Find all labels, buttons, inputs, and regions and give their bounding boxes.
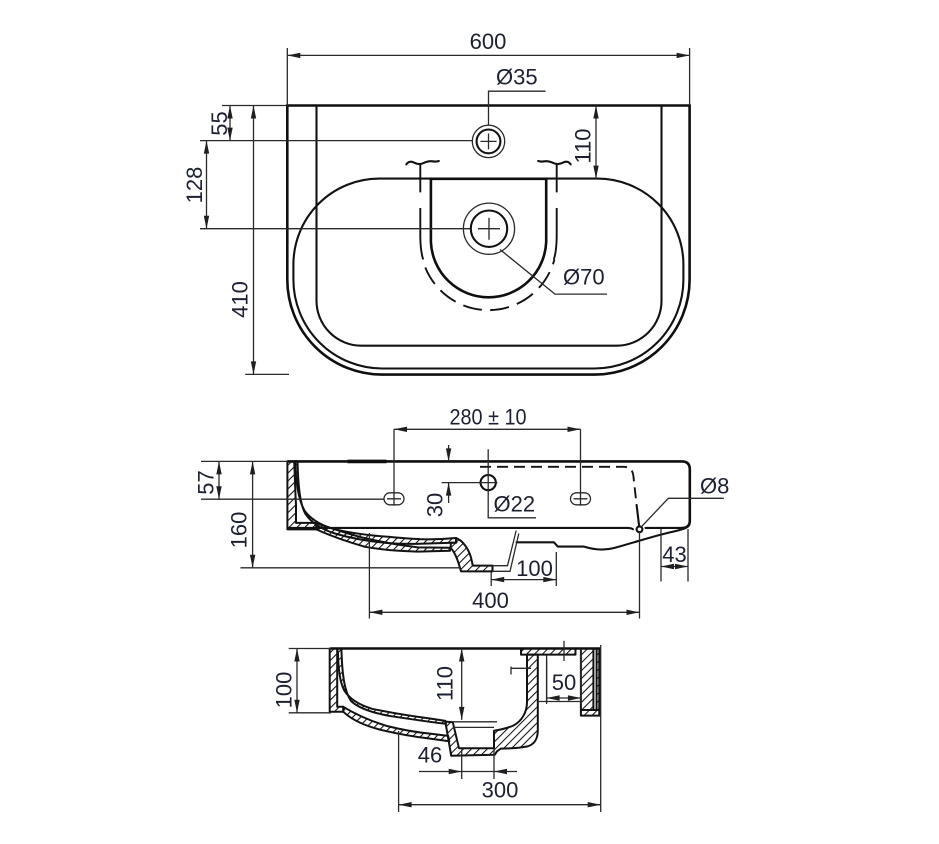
svg-text:43: 43	[662, 542, 686, 567]
svg-text:400: 400	[472, 588, 509, 613]
svg-text:46: 46	[418, 743, 442, 768]
svg-text:100: 100	[272, 672, 297, 709]
svg-text:Ø22: Ø22	[494, 492, 536, 517]
svg-text:280 ± 10: 280 ± 10	[450, 405, 527, 430]
svg-text:128: 128	[182, 167, 207, 204]
svg-text:55: 55	[207, 111, 232, 135]
svg-text:110: 110	[433, 666, 458, 701]
svg-text:Ø8: Ø8	[700, 474, 729, 499]
svg-text:50: 50	[552, 670, 576, 695]
svg-text:30: 30	[423, 493, 448, 517]
svg-text:Ø70: Ø70	[563, 265, 605, 290]
svg-text:Ø35: Ø35	[496, 65, 538, 90]
svg-text:110: 110	[571, 128, 596, 163]
svg-text:100: 100	[516, 556, 553, 581]
svg-text:300: 300	[482, 778, 519, 803]
svg-text:600: 600	[470, 29, 507, 54]
svg-text:57: 57	[194, 470, 219, 494]
svg-text:410: 410	[228, 281, 253, 318]
svg-text:160: 160	[227, 512, 252, 549]
